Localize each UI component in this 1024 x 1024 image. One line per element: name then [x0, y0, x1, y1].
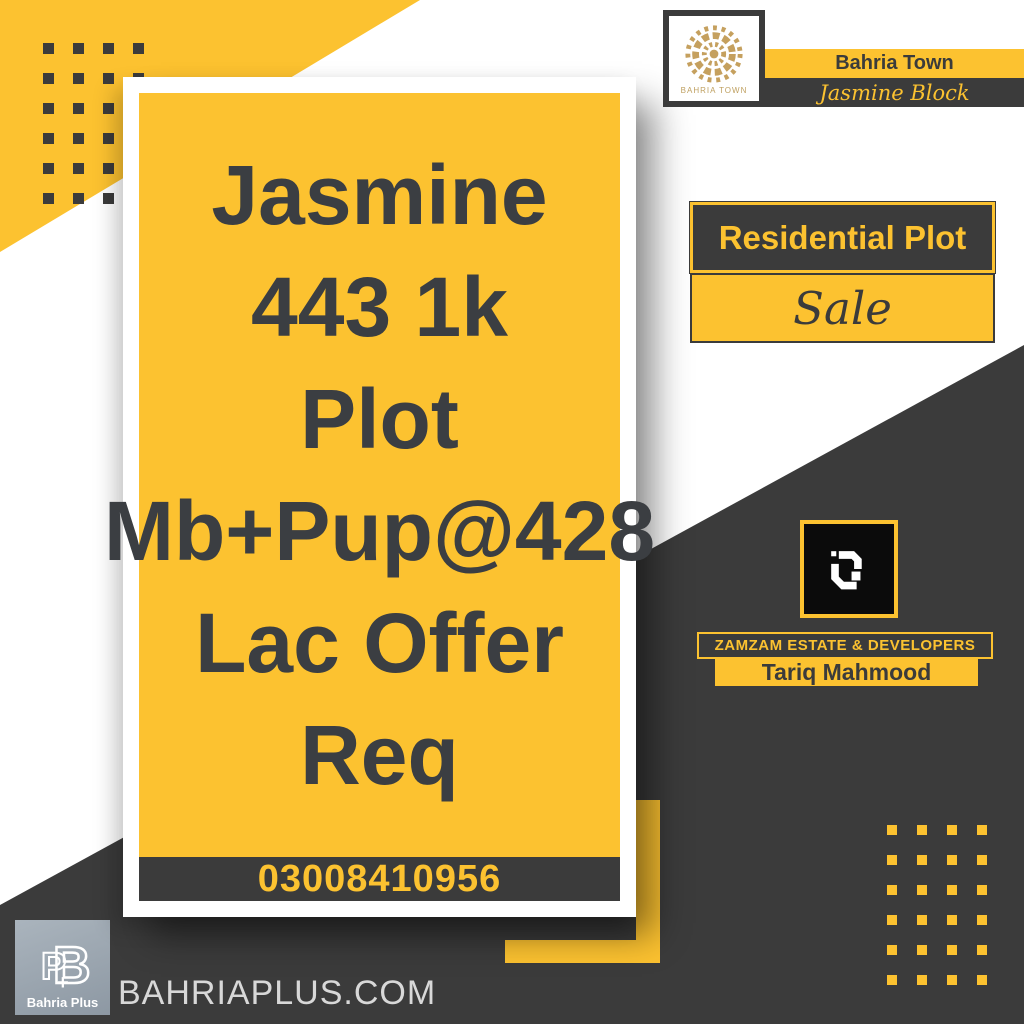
headline-line: 443 1k: [251, 251, 508, 363]
phone-number: 03008410956: [258, 858, 501, 901]
brand-name-bar: Bahria Town: [765, 49, 1024, 78]
listing-status-box: Sale: [690, 273, 995, 343]
zamzam-logo-box: [800, 520, 898, 618]
bahria-town-emblem-icon: [683, 23, 745, 85]
bahria-plus-monogram-icon: B P +: [31, 937, 95, 995]
headline-line: Req: [300, 699, 459, 811]
poster-canvas: BAHRIA TOWN Bahria Town Jasmine Block Re…: [0, 0, 1024, 1024]
headline: Jasmine443 1kPlotMb+Pup@428Lac OfferReq: [139, 93, 620, 857]
bahria-town-logo-box: BAHRIA TOWN: [663, 10, 765, 107]
block-name-bar: Jasmine Block: [765, 78, 1024, 107]
headline-line: Mb+Pup@428: [104, 475, 655, 587]
agent-name-label: Tariq Mahmood: [762, 659, 932, 686]
headline-line: Jasmine: [211, 139, 547, 251]
agent-name-bar: Tariq Mahmood: [715, 659, 978, 686]
dot-grid-bottom-right: [887, 825, 987, 985]
svg-text:+: +: [57, 972, 69, 994]
bahria-plus-logo-box: B P + Bahria Plus: [15, 920, 110, 1015]
zamzam-logo-icon: [821, 541, 877, 597]
phone-bar: 03008410956: [139, 857, 620, 901]
listing-type-label: Residential Plot: [719, 219, 967, 257]
bahria-plus-logo-caption: Bahria Plus: [27, 995, 99, 1010]
headline-line: Plot: [300, 363, 459, 475]
headline-line: Lac Offer: [195, 587, 564, 699]
listing-status-label: Sale: [793, 282, 892, 335]
listing-type-box: Residential Plot: [690, 202, 995, 273]
block-name-label: Jasmine Block: [819, 81, 969, 105]
bahria-town-logo-caption: BAHRIA TOWN: [681, 86, 748, 95]
brand-name-label: Bahria Town: [835, 52, 954, 75]
website-url: BAHRIAPLUS.COM: [118, 974, 436, 1013]
card-corner-accent-horizontal: [505, 940, 660, 963]
listing-card-inner: Jasmine443 1kPlotMb+Pup@428Lac OfferReq …: [139, 93, 620, 901]
card-corner-accent-vertical: [636, 800, 660, 963]
agency-name-label: ZAMZAM ESTATE & DEVELOPERS: [715, 637, 976, 654]
listing-card: Jasmine443 1kPlotMb+Pup@428Lac OfferReq …: [123, 77, 636, 917]
agency-name-bar: ZAMZAM ESTATE & DEVELOPERS: [697, 632, 993, 659]
